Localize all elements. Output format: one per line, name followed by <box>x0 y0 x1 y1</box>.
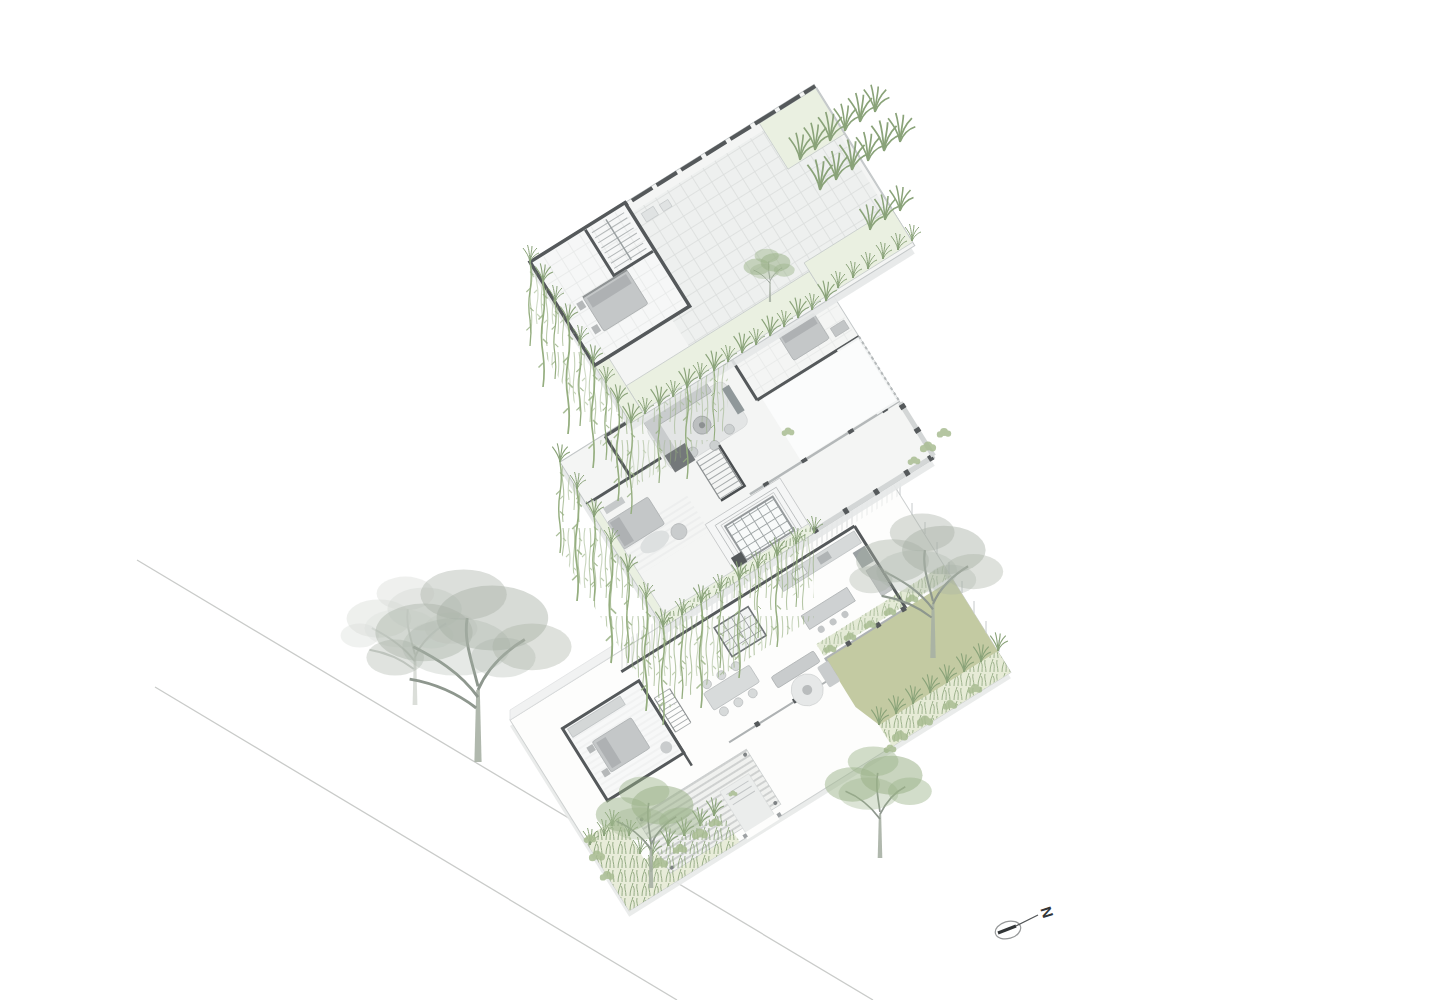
exploded-axonometric-diagram: N <box>0 0 1440 1000</box>
drawing-svg: N <box>0 0 1440 1000</box>
north-needle <box>998 926 1016 933</box>
north-arrow: N <box>993 905 1057 942</box>
north-label: N <box>1037 905 1057 921</box>
north-needle-line <box>1016 915 1038 926</box>
